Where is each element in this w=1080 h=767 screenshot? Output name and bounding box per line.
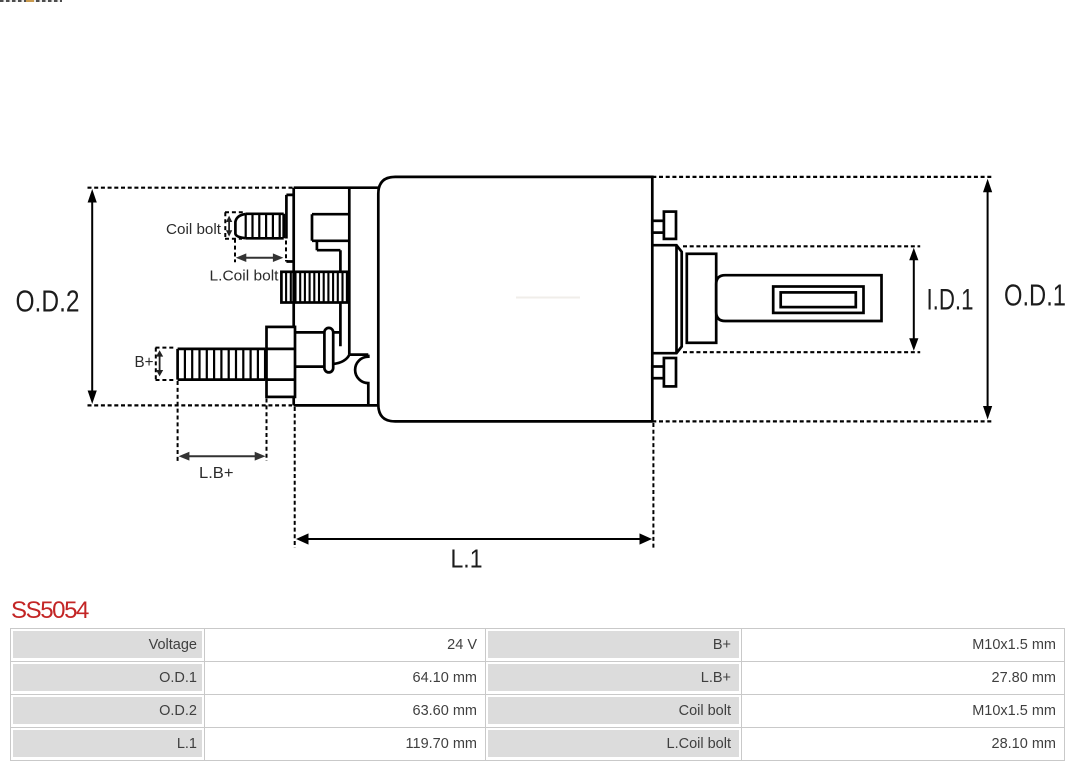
svg-text:O.D.1: O.D.1 xyxy=(1004,278,1066,313)
svg-text:O.D.2: O.D.2 xyxy=(16,284,80,319)
svg-text:B+: B+ xyxy=(135,354,154,371)
svg-text:L.1: L.1 xyxy=(451,543,483,573)
svg-text:L.B+: L.B+ xyxy=(199,465,234,482)
svg-text:Coil bolt: Coil bolt xyxy=(166,222,221,238)
svg-text:L.Coil bolt: L.Coil bolt xyxy=(210,268,279,284)
svg-text:I.D.1: I.D.1 xyxy=(927,283,974,316)
